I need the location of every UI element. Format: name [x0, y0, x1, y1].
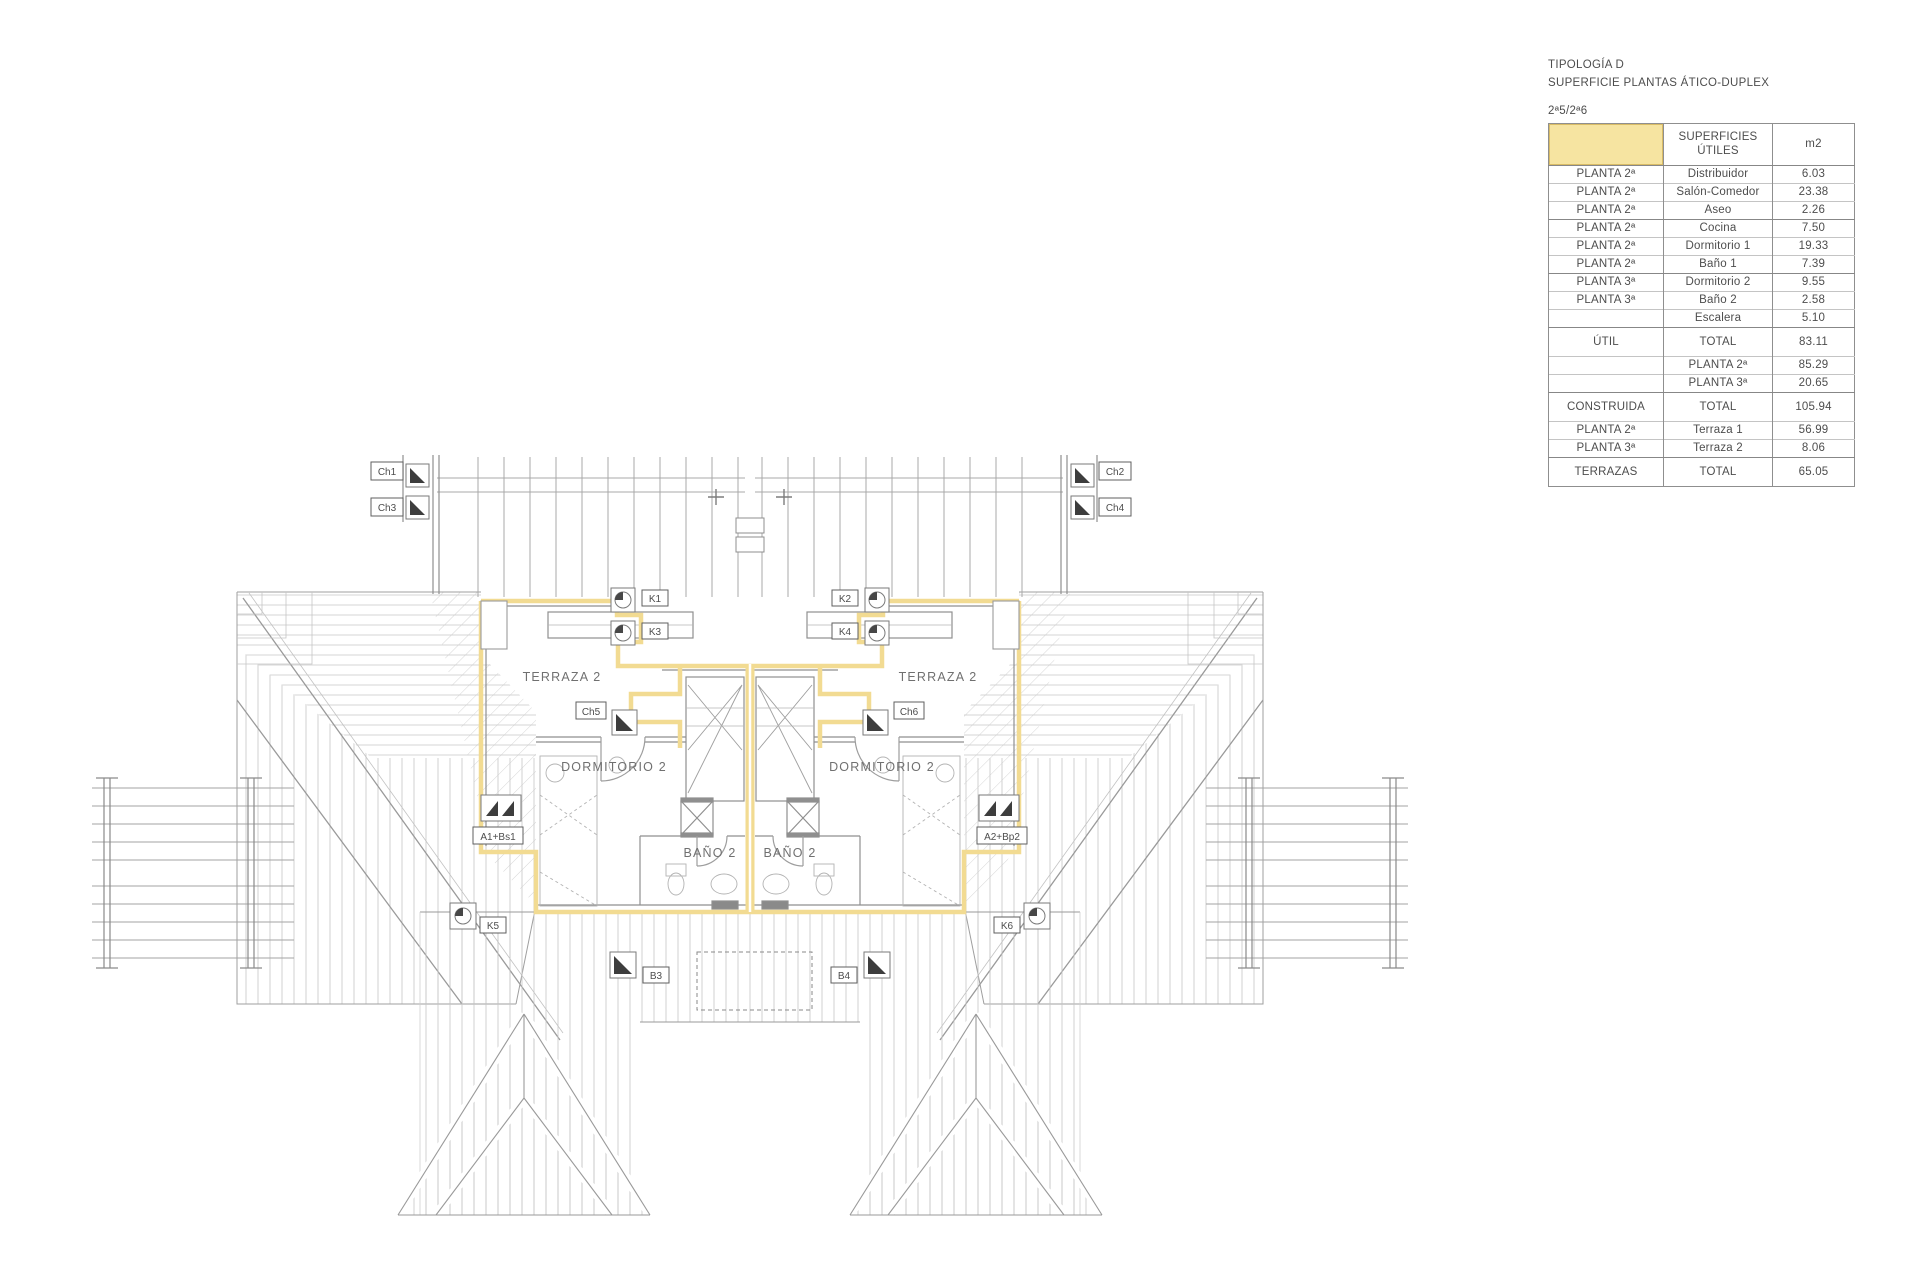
- cell-planta: PLANTA 2ª: [1549, 421, 1664, 439]
- cell-planta: PLANTA 3ª: [1549, 439, 1664, 457]
- cell-concepto: Distribuidor: [1664, 165, 1773, 183]
- table-row: PLANTA 3ªBaño 22.58: [1549, 291, 1855, 309]
- cell-valor: 85.29: [1773, 356, 1855, 374]
- cell-planta: PLANTA 3ª: [1549, 291, 1664, 309]
- room-label-bano-right: BAÑO 2: [763, 846, 816, 860]
- cell-valor: 23.38: [1773, 183, 1855, 201]
- cell-planta: PLANTA 2ª: [1549, 201, 1664, 219]
- cell-valor: 2.26: [1773, 201, 1855, 219]
- cell-valor: 20.65: [1773, 374, 1855, 392]
- cell-concepto: Dormitorio 1: [1664, 237, 1773, 255]
- cell-planta: [1549, 309, 1664, 327]
- cell-planta: PLANTA 3ª: [1549, 273, 1664, 291]
- cell-concepto: TOTAL: [1664, 327, 1773, 356]
- tag-ch6: Ch6: [900, 707, 919, 718]
- cell-concepto: Terraza 2: [1664, 439, 1773, 457]
- table-row-total-construida: CONSTRUIDATOTAL105.94: [1549, 392, 1855, 421]
- cell-planta: [1549, 374, 1664, 392]
- cell-valor: 9.55: [1773, 273, 1855, 291]
- cell-concepto: Escalera: [1664, 309, 1773, 327]
- header-line2: ÚTILES: [1697, 145, 1738, 157]
- table-row-total-util: ÚTILTOTAL83.11: [1549, 327, 1855, 356]
- tag-ch5: Ch5: [582, 707, 601, 718]
- cell-concepto: Cocina: [1664, 219, 1773, 237]
- cell-planta: PLANTA 2ª: [1549, 165, 1664, 183]
- tag-k5: K5: [487, 921, 500, 932]
- tag-k4: K4: [839, 627, 852, 638]
- area-table-block: TIPOLOGÍA D SUPERFICIE PLANTAS ÁTICO-DUP…: [1548, 56, 1839, 487]
- tag-k3: K3: [649, 627, 662, 638]
- header-m2: m2: [1773, 123, 1855, 165]
- tag-b3: B3: [650, 971, 663, 982]
- room-label-terraza-right: TERRAZA 2: [899, 670, 978, 684]
- table-row: PLANTA 2ªAseo2.26: [1549, 201, 1855, 219]
- header-superficies-utiles: SUPERFICIES ÚTILES: [1664, 123, 1773, 165]
- cell-valor: 7.39: [1773, 255, 1855, 273]
- cell-concepto: Aseo: [1664, 201, 1773, 219]
- cell-planta: PLANTA 2ª: [1549, 219, 1664, 237]
- table-row: PLANTA 2ªCocina7.50: [1549, 219, 1855, 237]
- sheet-canvas: { "title_block": { "line1": "TIPOLOGÍA D…: [0, 0, 1920, 1280]
- table-row-total-terrazas: TERRAZASTOTAL65.05: [1549, 457, 1855, 486]
- cell-planta: ÚTIL: [1549, 327, 1664, 356]
- tag-k1: K1: [649, 594, 662, 605]
- cell-valor: 6.03: [1773, 165, 1855, 183]
- tag-ch3: Ch3: [378, 503, 397, 514]
- tag-ch4: Ch4: [1106, 503, 1125, 514]
- header-line1: SUPERFICIES: [1679, 131, 1758, 143]
- cell-concepto: PLANTA 2ª: [1664, 356, 1773, 374]
- room-label-terraza-left: TERRAZA 2: [523, 670, 602, 684]
- cell-valor: 19.33: [1773, 237, 1855, 255]
- table-row: PLANTA 2ªSalón-Comedor23.38: [1549, 183, 1855, 201]
- cell-valor: 56.99: [1773, 421, 1855, 439]
- cell-valor: 5.10: [1773, 309, 1855, 327]
- cell-concepto: Dormitorio 2: [1664, 273, 1773, 291]
- highlight-swatch-cell: [1549, 123, 1664, 165]
- cell-planta: CONSTRUIDA: [1549, 392, 1664, 421]
- window-icon-a2: [979, 795, 1019, 821]
- room-label-dormitorio-left: DORMITORIO 2: [561, 760, 667, 774]
- cell-planta: PLANTA 2ª: [1549, 183, 1664, 201]
- tag-k2: K2: [839, 594, 852, 605]
- tag-ch2: Ch2: [1106, 467, 1125, 478]
- cell-planta: [1549, 356, 1664, 374]
- chimney-center: [736, 518, 764, 552]
- cell-valor: 7.50: [1773, 219, 1855, 237]
- table-row: PLANTA 2ªTerraza 156.99: [1549, 421, 1855, 439]
- cell-concepto: PLANTA 3ª: [1664, 374, 1773, 392]
- tag-k6: K6: [1001, 921, 1014, 932]
- table-row: PLANTA 2ªDistribuidor6.03: [1549, 165, 1855, 183]
- cell-valor: 83.11: [1773, 327, 1855, 356]
- table-row: PLANTA 2ª85.29: [1549, 356, 1855, 374]
- tag-a2: A2+Bp2: [984, 832, 1020, 843]
- cell-valor: 65.05: [1773, 457, 1855, 486]
- table-row: PLANTA 2ªDormitorio 119.33: [1549, 237, 1855, 255]
- room-label-dormitorio-right: DORMITORIO 2: [829, 760, 935, 774]
- cell-planta: PLANTA 2ª: [1549, 255, 1664, 273]
- pergola-right: [755, 455, 1097, 597]
- cell-concepto: Salón-Comedor: [1664, 183, 1773, 201]
- window-icon-a1: [481, 795, 521, 821]
- cell-planta: TERRAZAS: [1549, 457, 1664, 486]
- title-block: TIPOLOGÍA D SUPERFICIE PLANTAS ÁTICO-DUP…: [1548, 56, 1839, 93]
- cell-concepto: TOTAL: [1664, 457, 1773, 486]
- cell-concepto: Baño 2: [1664, 291, 1773, 309]
- table-row: PLANTA 3ªDormitorio 29.55: [1549, 273, 1855, 291]
- table-row: PLANTA 3ªTerraza 28.06: [1549, 439, 1855, 457]
- cell-valor: 8.06: [1773, 439, 1855, 457]
- unit-numbers: 2ª5/2ª6: [1548, 105, 1839, 117]
- cell-concepto: Baño 1: [1664, 255, 1773, 273]
- cell-planta: PLANTA 2ª: [1549, 237, 1664, 255]
- table-row: PLANTA 2ªBaño 17.39: [1549, 255, 1855, 273]
- pergola-left: [403, 455, 745, 597]
- surface-subtitle: SUPERFICIE PLANTAS ÁTICO-DUPLEX: [1548, 74, 1839, 92]
- cell-concepto: TOTAL: [1664, 392, 1773, 421]
- table-header-row: SUPERFICIES ÚTILES m2: [1549, 123, 1855, 165]
- cell-valor: 105.94: [1773, 392, 1855, 421]
- tag-b4: B4: [838, 971, 851, 982]
- tag-ch1: Ch1: [378, 467, 397, 478]
- table-row: Escalera5.10: [1549, 309, 1855, 327]
- surface-table: SUPERFICIES ÚTILES m2 PLANTA 2ªDistribui…: [1548, 123, 1855, 487]
- table-row: PLANTA 3ª20.65: [1549, 374, 1855, 392]
- tag-a1: A1+Bs1: [480, 832, 516, 843]
- cell-concepto: Terraza 1: [1664, 421, 1773, 439]
- typology-title: TIPOLOGÍA D: [1548, 56, 1839, 74]
- room-label-bano-left: BAÑO 2: [683, 846, 736, 860]
- cell-valor: 2.58: [1773, 291, 1855, 309]
